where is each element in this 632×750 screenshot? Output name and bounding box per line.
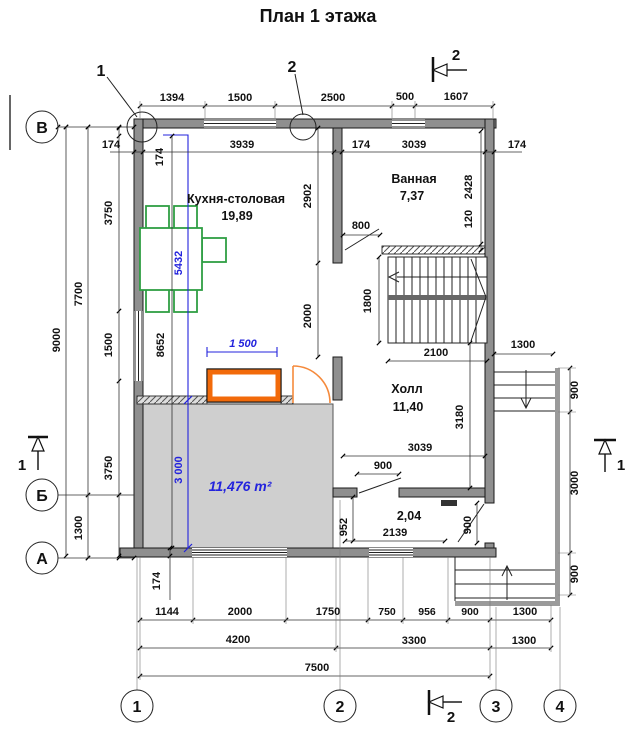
section-label-left: 1	[18, 457, 26, 474]
window-bottom-2	[369, 548, 413, 557]
partition-kitchen-stub	[333, 357, 342, 400]
dim-vest-left: 952	[338, 518, 350, 536]
chair	[146, 206, 169, 229]
floor-plan-page: План 1 этажа	[0, 0, 632, 750]
dim-174-right: 174	[508, 139, 527, 151]
dim-top-1607: 1607	[444, 91, 468, 103]
dim-bottom-174: 174	[151, 571, 163, 590]
room-hall-name: Холл	[391, 382, 422, 396]
axis-label-2: 2	[336, 699, 345, 716]
room-bath-name: Ванная	[391, 172, 436, 186]
dim-bottom-4200: 4200	[226, 634, 250, 646]
dim-top-2500: 2500	[321, 92, 345, 104]
dim-bottom-1300b: 1300	[512, 635, 536, 647]
dim-left-1300: 1300	[73, 516, 85, 540]
axis-leader-1: 1	[97, 63, 106, 80]
dim-left-3750b: 3750	[103, 456, 115, 480]
axis-leader-2: 2	[288, 59, 297, 76]
dim-right-900b: 900	[569, 565, 581, 583]
dim-bottom-900: 900	[461, 606, 479, 618]
room-vestibule-area: 2,04	[397, 509, 421, 523]
dining-table	[140, 228, 202, 290]
blue-total-height: 5432	[173, 251, 185, 275]
dim-left-3750a: 3750	[103, 201, 115, 225]
dim-porch-top: 1300	[511, 339, 535, 351]
axis-label-a: А	[36, 551, 48, 568]
dim-left-7700: 7700	[73, 282, 85, 306]
axis-label-1: 1	[133, 699, 142, 716]
dim-bath-height: 2428	[463, 175, 475, 199]
dim-entry-door: 900	[462, 516, 474, 534]
dim-stair-height: 1800	[362, 289, 374, 313]
dim-kitchen-height: 8652	[155, 333, 167, 357]
dim-kitchen-right-2902: 2902	[302, 184, 314, 208]
wall-hall-bottom-right	[399, 488, 485, 497]
dim-kitchen-width: 3939	[230, 139, 254, 151]
dim-bottom-1144: 1144	[155, 606, 180, 618]
dim-hall-door: 900	[374, 460, 392, 472]
entry-threshold	[441, 500, 457, 506]
porch-steps-bottom	[455, 566, 555, 600]
dim-bath-door: 800	[352, 220, 370, 232]
axis-label-4: 4	[556, 699, 565, 716]
room-kitchen-name: Кухня-столовая	[187, 192, 285, 206]
window-bottom-1	[192, 548, 287, 557]
section-label-right: 1	[617, 457, 625, 474]
dim-bottom-750: 750	[378, 606, 396, 618]
dim-174-left-v: 174	[154, 147, 166, 166]
terrace-sill-hatch2	[281, 396, 293, 404]
chair	[174, 206, 197, 229]
porch	[455, 368, 560, 606]
room-kitchen-area: 19,89	[221, 209, 252, 223]
terrace	[137, 404, 333, 548]
hearth-box	[207, 369, 281, 402]
bath-door-leaf	[345, 229, 379, 250]
dim-hall-width: 3039	[408, 442, 432, 454]
hall-door-leaf	[359, 478, 401, 493]
dim-top-500: 500	[396, 91, 414, 103]
blue-terrace-height: 3 000	[173, 456, 185, 484]
section-marker-left: 1	[18, 437, 48, 474]
landing-edge-hatch	[382, 246, 485, 254]
dimension-labels: 1394 1500 2500 500 1607 174 174 3939 174…	[51, 91, 581, 674]
window-left	[134, 311, 143, 381]
chair	[146, 289, 169, 312]
wall-bottom	[120, 548, 496, 557]
dim-stair-width: 2100	[424, 347, 448, 359]
dim-bottom-2000: 2000	[228, 606, 252, 618]
terrace-door	[293, 366, 330, 403]
terrace-area-label: 11,476 m²	[209, 478, 272, 494]
dim-bath-wall: 120	[463, 210, 475, 228]
dim-bottom-956: 956	[418, 606, 436, 618]
axis-label-b: Б	[36, 488, 48, 505]
dim-174-left-h: 174	[102, 139, 121, 151]
stair-rail	[388, 295, 487, 300]
dim-bottom-1750: 1750	[316, 606, 340, 618]
stairs	[388, 257, 487, 343]
room-hall-area: 11,40	[393, 400, 424, 414]
section-label-bottom: 2	[447, 709, 455, 726]
axis-label-v: В	[36, 120, 48, 137]
dim-kitchen-right-2000: 2000	[302, 304, 314, 328]
dim-top-1394: 1394	[160, 92, 185, 104]
dim-174-mid: 174	[352, 139, 371, 151]
dim-right-3000: 3000	[569, 471, 581, 495]
room-bath-area: 7,37	[400, 189, 424, 203]
window-top-1	[204, 119, 276, 128]
dim-top-1500: 1500	[228, 92, 252, 104]
floor-plan-drawing: План 1 этажа	[0, 0, 632, 750]
section-marker-right: 1	[594, 440, 625, 474]
dim-vest-width: 2139	[383, 527, 407, 539]
blue-hearth-width: 1 500	[229, 338, 257, 350]
dim-hall-height: 3180	[454, 405, 466, 429]
wall-hall-bottom-left	[333, 488, 357, 497]
dim-left-1500: 1500	[103, 333, 115, 357]
chair	[202, 238, 226, 262]
dim-left-9000: 9000	[51, 328, 63, 352]
dim-bottom-3300: 3300	[402, 635, 426, 647]
section-marker-bottom: 2	[429, 690, 462, 726]
porch-steps-top	[494, 370, 555, 411]
chair	[174, 289, 197, 312]
axis-label-3: 3	[492, 699, 501, 716]
section-marker-top: 2	[433, 47, 467, 82]
dim-bottom-1300a: 1300	[513, 606, 537, 618]
dim-bottom-7500: 7500	[305, 662, 329, 674]
page-title: План 1 этажа	[260, 6, 378, 26]
window-top-2	[392, 119, 425, 128]
dim-bath-width: 3039	[402, 139, 426, 151]
section-label-top: 2	[452, 47, 460, 64]
partition-kitchen	[333, 128, 342, 263]
dim-right-900a: 900	[569, 381, 581, 399]
